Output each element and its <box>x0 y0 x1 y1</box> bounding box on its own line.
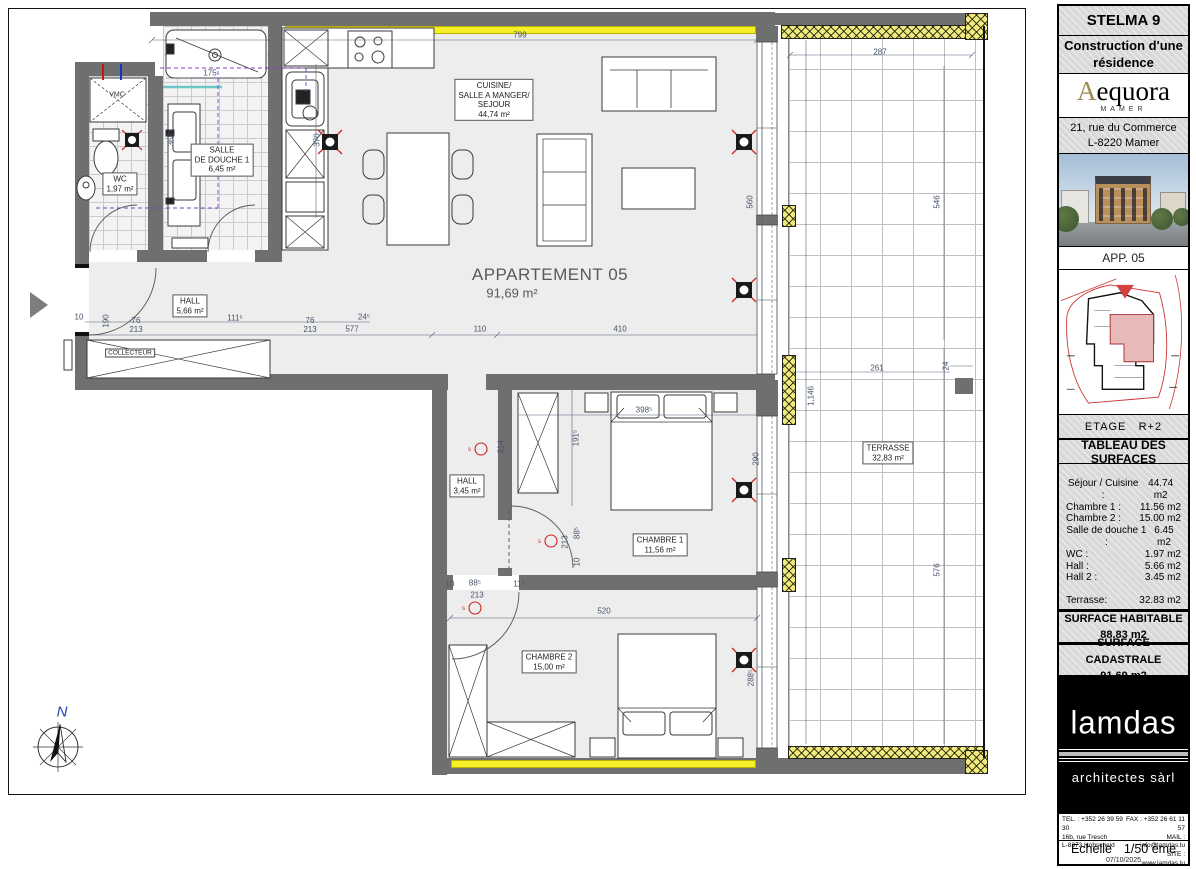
dimension: 24⁵ <box>358 314 370 323</box>
building-rendering <box>1059 154 1188 247</box>
brand-initial: A <box>1077 76 1097 106</box>
scale-value: 1/50 ème <box>1124 842 1176 856</box>
floor-plan: s s s <box>0 0 1053 869</box>
room-label-hall2: HALL 3,45 m² <box>449 474 484 497</box>
brand-logo: Aequora MAMER <box>1059 74 1188 118</box>
stove-icon <box>348 31 392 68</box>
nightstand <box>718 738 743 757</box>
sideboard-chambre2 <box>487 722 575 757</box>
surface-row-label: Chambre 1 : <box>1066 502 1121 514</box>
rendering-tree <box>1173 208 1188 226</box>
kitchen-sink-icon <box>286 72 324 126</box>
surface-table: Séjour / Cuisine :44.74 m2Chambre 1 :11.… <box>1059 464 1188 610</box>
chair-icon <box>452 195 473 224</box>
light-icon <box>732 130 756 154</box>
drawing-sheet: s s s <box>0 0 1196 869</box>
north-label: N <box>57 704 68 721</box>
surface-row: Chambre 2 :15.00 m2 <box>1066 513 1181 525</box>
dimension: 11⁵ <box>513 581 525 590</box>
brand-sub: MAMER <box>1100 106 1146 113</box>
logo-line <box>1059 758 1188 759</box>
drawing-date: 07/10/2025 <box>1106 857 1141 864</box>
site-key-plan <box>1059 270 1188 415</box>
wc-door-arc <box>90 205 137 252</box>
dimension: 76 213 <box>303 317 316 335</box>
dimension: 111⁵ <box>227 315 242 324</box>
dimension: 560 <box>747 195 756 208</box>
etage-value: R+2 <box>1139 421 1163 433</box>
dimension: 190 <box>103 314 112 327</box>
surface-row: WC :1.97 m2 <box>1066 549 1181 561</box>
chair-icon <box>363 150 384 179</box>
scale-row: Echelle 1/50 ème 07/10/2025 <box>1059 841 1188 864</box>
etage-label: ETAGE <box>1085 421 1126 433</box>
surface-row: Salle de douche 1 :6.45 m2 <box>1066 525 1181 549</box>
light-icon <box>732 478 756 502</box>
dimension: 410 <box>613 326 626 335</box>
nightstand <box>714 393 737 412</box>
entry-arrow-icon <box>30 292 48 318</box>
compass-icon <box>33 722 83 772</box>
surface-row: Séjour / Cuisine :44.74 m2 <box>1066 478 1181 502</box>
meter-box <box>64 340 72 370</box>
surface-row-label: Terrasse: <box>1066 595 1107 607</box>
tableau-title: TABLEAU DES SURFACES <box>1059 439 1188 464</box>
architect-logo-lines <box>1059 749 1188 762</box>
surface-habitable-label: SURFACE HABITABLE <box>1064 611 1182 628</box>
chair-icon <box>363 195 384 224</box>
rendering-tree <box>1151 208 1173 230</box>
contact-tel: TEL. : +352 26 39 59 30 <box>1062 816 1124 834</box>
dimension: 576 <box>934 563 943 576</box>
dimension: 398⁵ <box>636 407 653 416</box>
surface-row-label: Chambre 2 : <box>1066 513 1121 525</box>
chair-icon <box>452 150 473 179</box>
dimension: 191⁵ <box>573 430 582 447</box>
coffee-table <box>622 168 695 209</box>
dimension: 88⁵ <box>574 527 583 539</box>
entry-door-arc <box>89 268 156 335</box>
smoke-detector-icon <box>475 443 487 455</box>
dimension: 88⁵ <box>469 580 481 589</box>
nightstand <box>590 738 615 757</box>
svg-text:s: s <box>468 447 471 453</box>
dimension: 1,146 <box>808 386 817 406</box>
room-label-salle-de-douche: SALLE DE DOUCHE 1 6,45 m² <box>191 144 254 177</box>
surface-row-value: 3.45 m2 <box>1145 572 1181 584</box>
room-label-terrasse: TERRASSE 32,83 m² <box>862 441 913 464</box>
architect-logo-sub: architectes sàrl <box>1072 770 1175 785</box>
architect-contact: TEL. : +352 26 39 59 30 16b, rue Tresch … <box>1059 814 1188 841</box>
surface-row-label: WC : <box>1066 549 1088 561</box>
wardrobe-chambre2 <box>449 645 487 757</box>
light-icon <box>122 130 142 150</box>
architect-logo-name: lamdas <box>1071 704 1177 742</box>
wc-sink-icon <box>77 176 95 200</box>
surface-row: Hall :5.66 m2 <box>1066 561 1181 573</box>
surface-row-value: 5.66 m2 <box>1145 561 1181 573</box>
dimension: 799 <box>513 32 526 41</box>
project-subtitle: Construction d'une résidence <box>1059 36 1188 74</box>
project-title: STELMA 9 <box>1059 6 1188 36</box>
surface-row-label: Hall 2 : <box>1066 572 1097 584</box>
dimension: 76 213 <box>129 317 142 335</box>
dimension: 288⁵ <box>748 670 757 687</box>
rendering-building-main <box>1095 176 1151 224</box>
surface-cadastrale: SURFACE CADASTRALE 91.69 m2 <box>1059 643 1188 676</box>
dimension: 213 <box>470 592 483 601</box>
apartment-area: 91,69 m² <box>486 286 537 301</box>
room-label-sejour: CUISINE/ SALLE A MANGER/ SEJOUR 44,74 m² <box>454 79 533 121</box>
light-icon <box>732 648 756 672</box>
shower-door-arc <box>208 205 255 252</box>
site-plan-svg <box>1059 271 1188 414</box>
dimension: 314 <box>498 440 507 453</box>
svg-text:s: s <box>538 539 541 545</box>
dimension: 10 <box>574 558 583 567</box>
kitchen-corner-cabinet <box>284 30 328 66</box>
dimension: 546 <box>934 195 943 208</box>
sofa-icon <box>602 57 716 111</box>
room-label-chambre1: CHAMBRE 1 11,56 m² <box>633 533 688 556</box>
svg-text:s: s <box>462 606 465 612</box>
architect-logo: lamdas architectes sàrl <box>1059 676 1188 814</box>
dimension: 370 <box>314 133 323 146</box>
surface-row-value: 11.56 m2 <box>1140 502 1181 514</box>
smoke-detector-icon <box>545 535 557 547</box>
room-label-hall: HALL 5,66 m² <box>172 294 207 317</box>
toilet-icon <box>93 129 119 175</box>
shower-bench <box>172 238 208 248</box>
dimension: 368⁵ <box>168 130 177 147</box>
bed-chambre2 <box>618 634 716 758</box>
logo-line <box>1059 749 1188 750</box>
surface-row: Chambre 1 :11.56 m2 <box>1066 502 1181 514</box>
dimension: 290 <box>753 452 762 465</box>
scale-label: Echelle <box>1071 842 1112 856</box>
bed-chambre1 <box>611 392 712 510</box>
dimension: 10 <box>75 314 84 323</box>
vmc-shaft <box>90 78 146 122</box>
wardrobe-chambre1 <box>518 393 558 493</box>
nightstand <box>585 393 608 412</box>
dimension: 175 <box>203 70 216 79</box>
rendering-windows <box>1099 188 1147 221</box>
surface-row-value: 44.74 m2 <box>1140 478 1181 502</box>
dimension: 10 <box>446 581 455 590</box>
surface-row: Hall 2 :3.45 m2 <box>1066 572 1181 584</box>
tv-sideboard <box>537 134 592 246</box>
dimension: 24 <box>943 362 952 371</box>
apartment-title: APPARTEMENT 05 <box>472 265 628 285</box>
dimension: 213 <box>562 535 571 548</box>
dimension: 577 <box>345 326 358 335</box>
light-icon <box>732 278 756 302</box>
surface-row-value: 1.97 m2 <box>1145 549 1181 561</box>
title-block: STELMA 9 Construction d'une résidence Ae… <box>1057 4 1190 866</box>
brand-name: Aequora <box>1077 78 1170 105</box>
dining-table <box>387 133 449 245</box>
logo-line <box>1059 761 1188 762</box>
dimension: 287 <box>873 49 886 58</box>
surface-cadastrale-label: SURFACE CADASTRALE <box>1059 635 1188 668</box>
surface-row-value: 6.45 m2 <box>1147 525 1181 549</box>
smoke-detector-icon <box>469 602 481 614</box>
dimension: 110 <box>474 326 487 335</box>
kitchen-appliance <box>286 216 324 248</box>
surface-row-label: Hall : <box>1066 561 1089 573</box>
surface-row-value: 32.83 m2 <box>1139 595 1181 607</box>
dimension: 520 <box>597 608 610 617</box>
dimension: 261 <box>870 365 883 374</box>
surface-row-value: 15.00 m2 <box>1139 513 1181 525</box>
vmc-label: VMC <box>109 92 125 99</box>
collecteur-cabinet <box>87 340 270 378</box>
surface-row-label: Séjour / Cuisine : <box>1066 478 1140 502</box>
contact-fax: FAX : +352 26 61 11 57 <box>1124 816 1185 834</box>
project-address: 21, rue du Commerce L-8220 Mamer <box>1059 118 1188 154</box>
room-label-wc: WC 1,97 m² <box>102 172 137 195</box>
surface-row-label: Salle de douche 1 : <box>1066 525 1147 549</box>
collecteur-label: COLLECTEUR <box>105 349 155 358</box>
apartment-number: APP. 05 <box>1059 247 1188 270</box>
brand-rest: equora <box>1097 76 1170 106</box>
kitchen-cabinet <box>286 182 324 212</box>
etage-row: ETAGE R+2 <box>1059 415 1188 439</box>
logo-line <box>1059 752 1188 756</box>
terrace-windows <box>757 42 777 748</box>
surface-row: Terrasse:32.83 m2 <box>1066 595 1181 607</box>
room-label-chambre2: CHAMBRE 2 15,00 m² <box>522 650 577 673</box>
